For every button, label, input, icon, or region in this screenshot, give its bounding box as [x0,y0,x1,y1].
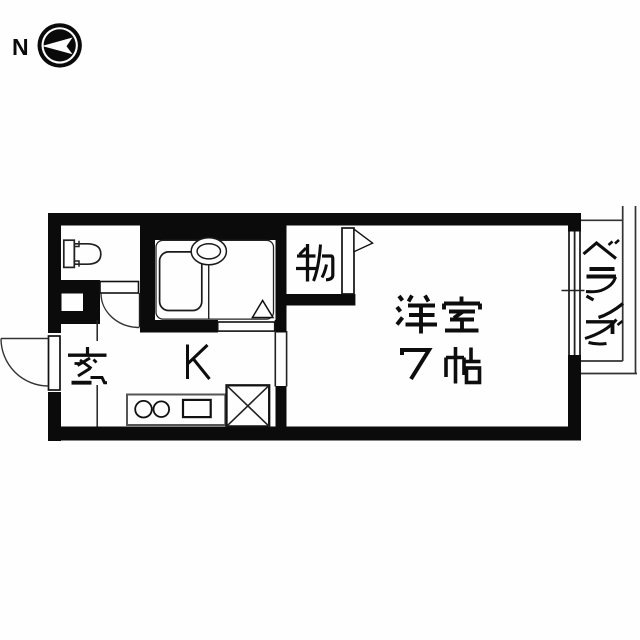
svg-text:N: N [12,34,29,60]
